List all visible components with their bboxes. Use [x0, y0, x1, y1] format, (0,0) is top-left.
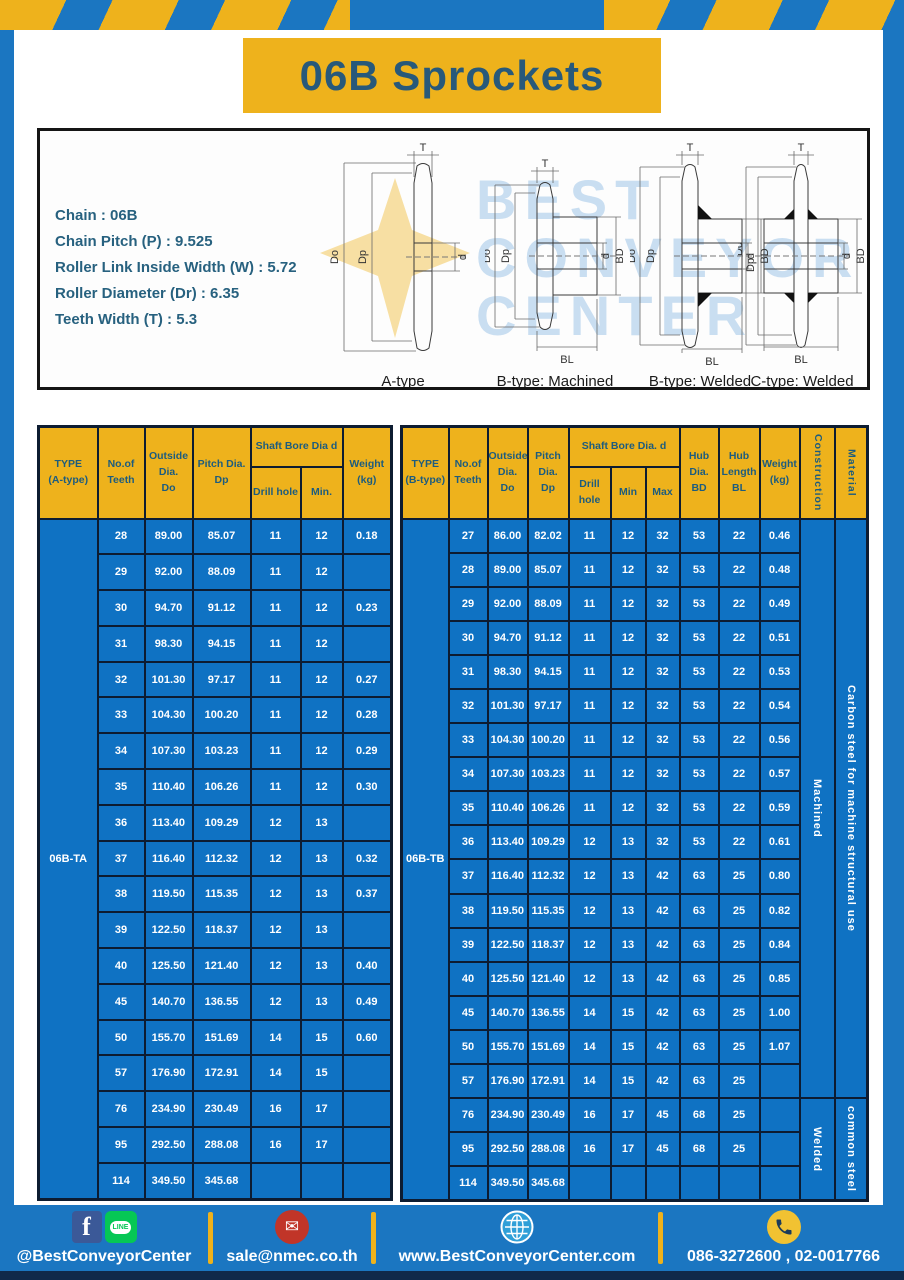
table-row: 34107.30103.2311123253220.57	[402, 757, 868, 791]
table-row: 3198.3094.1511123253220.53	[402, 655, 868, 689]
table-cell: 103.23	[193, 733, 251, 769]
table-cell: 112.32	[193, 841, 251, 877]
table-cell: 22	[719, 621, 760, 655]
table-cell: 114	[98, 1163, 145, 1199]
table-cell: 76	[98, 1091, 145, 1127]
table-cell: 13	[611, 962, 646, 996]
table-cell: 345.68	[193, 1163, 251, 1199]
table-cell: 95	[98, 1127, 145, 1163]
table-cell: 14	[251, 1055, 301, 1091]
table-cell	[343, 1091, 392, 1127]
table-cell: 25	[719, 1132, 760, 1166]
table-cell: 12	[301, 590, 343, 626]
svg-text:BD: BD	[855, 248, 866, 263]
table-cell	[760, 1064, 800, 1098]
footer-social-section: f LINE @BestConveyorCenter	[0, 1205, 208, 1271]
table-cell: 15	[301, 1055, 343, 1091]
table-cell: 13	[301, 876, 343, 912]
table-cell: 92.00	[488, 587, 528, 621]
table-cell: 109.29	[528, 825, 569, 859]
table-cell: 115.35	[193, 876, 251, 912]
table-cell: 98.30	[145, 626, 193, 662]
table-cell: 92.00	[145, 554, 193, 590]
svg-text:Do: Do	[485, 249, 493, 263]
table-cell: 101.30	[488, 689, 528, 723]
table-cell: 32	[646, 519, 680, 553]
caption-b-type-machined: B-type: Machined	[497, 373, 614, 390]
table-cell: 0.18	[343, 519, 392, 555]
table-row: 45140.70136.5514154263251.00	[402, 996, 868, 1030]
table-cell: 125.50	[145, 948, 193, 984]
table-cell: 57	[98, 1055, 145, 1091]
table-cell: 155.70	[145, 1020, 193, 1056]
table-cell: 13	[301, 984, 343, 1020]
table-cell: 12	[301, 519, 343, 555]
table-cell: 28	[98, 519, 145, 555]
table-cell: 101.30	[145, 662, 193, 698]
table-cell: 22	[719, 825, 760, 859]
table-cell: 0.23	[343, 590, 392, 626]
table-cell: 0.37	[343, 876, 392, 912]
col-header-construction: Construction	[800, 427, 835, 519]
table-cell: 97.17	[528, 689, 569, 723]
table-cell: 122.50	[145, 912, 193, 948]
phone-icon[interactable]	[767, 1210, 801, 1244]
table-cell: 40	[98, 948, 145, 984]
table-cell: 109.29	[193, 805, 251, 841]
table-cell: 1.07	[760, 1030, 800, 1064]
table-row: 33104.30100.2011123253220.56	[402, 723, 868, 757]
table-cell: 88.09	[528, 587, 569, 621]
table-row: 40125.50121.4012134263250.85	[402, 962, 868, 996]
table-cell: 63	[680, 928, 719, 962]
table-cell: 95	[449, 1132, 488, 1166]
table-row: 76234.90230.491617456825Weldedcommon ste…	[402, 1098, 868, 1132]
table-cell: 13	[611, 894, 646, 928]
table-cell: 16	[569, 1098, 611, 1132]
table-cell: 0.46	[760, 519, 800, 553]
svg-text:d: d	[841, 253, 853, 259]
caption-a-type: A-type	[381, 373, 424, 390]
table-cell: 0.49	[760, 587, 800, 621]
table-cell: 11	[569, 791, 611, 825]
table-cell: 25	[719, 996, 760, 1030]
table-cell: 11	[251, 697, 301, 733]
construction-cell: Machined	[800, 519, 835, 1099]
construction-cell: Welded	[800, 1098, 835, 1201]
diagram-a-type: T Do Dp d A-type	[328, 141, 478, 390]
table-cell: 91.12	[193, 590, 251, 626]
spec-chain: Chain : 06B	[55, 203, 297, 229]
globe-icon[interactable]	[500, 1210, 534, 1244]
table-cell: 12	[301, 554, 343, 590]
table-cell: 42	[646, 1030, 680, 1064]
footer-contact-bar: f LINE @BestConveyorCenter ✉ sale@nmec.c…	[0, 1205, 904, 1271]
col-header-max: Max	[646, 467, 680, 519]
table-cell: 31	[449, 655, 488, 689]
table-cell	[760, 1166, 800, 1201]
table-row: 114349.50345.68	[402, 1166, 868, 1201]
table-row: 38119.50115.3512134263250.82	[402, 894, 868, 928]
table-cell: 104.30	[145, 697, 193, 733]
svg-text:Dp: Dp	[357, 250, 369, 264]
table-cell: 12	[611, 655, 646, 689]
table-cell: 25	[719, 1030, 760, 1064]
table-cell: 155.70	[488, 1030, 528, 1064]
table-row: 2889.0085.0711123253220.48	[402, 553, 868, 587]
table-cell: 13	[301, 841, 343, 877]
table-cell: 42	[646, 962, 680, 996]
table-cell: 32	[646, 757, 680, 791]
table-cell: 25	[719, 1098, 760, 1132]
table-cell: 0.30	[343, 769, 392, 805]
mail-icon[interactable]: ✉	[275, 1210, 309, 1244]
table-row: 39122.50118.3712134263250.84	[402, 928, 868, 962]
table-cell: 50	[98, 1020, 145, 1056]
spec-pitch: Chain Pitch (P) : 9.525	[55, 229, 297, 255]
footer-website-section: www.BestConveyorCenter.com	[376, 1205, 658, 1271]
table-cell: 22	[719, 553, 760, 587]
table-cell: 16	[251, 1127, 301, 1163]
col-header-min: Min	[611, 467, 646, 519]
table-cell: 176.90	[488, 1064, 528, 1098]
table-cell: 32	[646, 791, 680, 825]
table-cell: 140.70	[145, 984, 193, 1020]
table-cell: 25	[719, 1064, 760, 1098]
a-type-drawing-icon: T Do Dp d	[328, 141, 478, 371]
table-cell	[611, 1166, 646, 1201]
col-header-shaft-bore: Shaft Bore Dia. d	[569, 427, 680, 467]
table-cell: 230.49	[528, 1098, 569, 1132]
col-header-pitch-dia: Pitch Dia. Dp	[528, 427, 569, 519]
table-cell: 15	[611, 1030, 646, 1064]
svg-text:BL: BL	[705, 356, 718, 368]
table-cell: 0.60	[343, 1020, 392, 1056]
table-cell: 17	[301, 1091, 343, 1127]
table-cell: 32	[646, 825, 680, 859]
table-cell	[343, 554, 392, 590]
table-cell: 22	[719, 723, 760, 757]
svg-text:T: T	[687, 142, 694, 154]
facebook-icon[interactable]: f	[72, 1211, 102, 1243]
table-cell: 345.68	[528, 1166, 569, 1201]
table-cell: 104.30	[488, 723, 528, 757]
table-cell: 119.50	[145, 876, 193, 912]
svg-text:d: d	[600, 253, 612, 259]
table-cell: 100.20	[193, 697, 251, 733]
col-header-pitch-dia: Pitch Dia. Dp	[193, 427, 251, 519]
table-cell: 34	[98, 733, 145, 769]
table-cell: 94.70	[488, 621, 528, 655]
line-app-icon[interactable]: LINE	[105, 1211, 137, 1243]
spec-roller-width: Roller Link Inside Width (W) : 5.72	[55, 255, 297, 281]
table-cell: 45	[646, 1132, 680, 1166]
table-cell: 0.28	[343, 697, 392, 733]
table-cell: 119.50	[488, 894, 528, 928]
diagram-b-type-machined: T Do Dp d BD BL	[485, 141, 625, 390]
table-cell: 16	[569, 1132, 611, 1166]
table-cell: 17	[611, 1098, 646, 1132]
table-cell: 32	[98, 662, 145, 698]
table-cell: 0.56	[760, 723, 800, 757]
col-header-teeth: No.of Teeth	[449, 427, 488, 519]
table-cell: 113.40	[488, 825, 528, 859]
table-cell: 27	[449, 519, 488, 553]
table-cell: 86.00	[488, 519, 528, 553]
table-cell: 112.32	[528, 859, 569, 893]
table-cell: 292.50	[145, 1127, 193, 1163]
table-cell: 12	[611, 723, 646, 757]
table-cell: 85.07	[528, 553, 569, 587]
table-cell: 12	[611, 553, 646, 587]
table-cell: 29	[449, 587, 488, 621]
table-cell: 13	[301, 948, 343, 984]
table-cell: 14	[569, 996, 611, 1030]
page-title: 06B Sprockets	[300, 52, 605, 100]
table-cell: 118.37	[528, 928, 569, 962]
table-cell: 0.59	[760, 791, 800, 825]
svg-text:Do: Do	[329, 250, 341, 264]
table-cell: 88.09	[193, 554, 251, 590]
table-cell: 176.90	[145, 1055, 193, 1091]
table-cell: 12	[301, 697, 343, 733]
table-cell: 12	[251, 805, 301, 841]
table-cell: 94.15	[528, 655, 569, 689]
table-cell: 12	[611, 519, 646, 553]
table-cell: 0.48	[760, 553, 800, 587]
svg-text:d: d	[457, 254, 469, 260]
table-a-header: TYPE (A-type) No.of Teeth Outside Dia. D…	[39, 427, 392, 519]
table-cell: 0.40	[343, 948, 392, 984]
table-cell: 11	[251, 769, 301, 805]
type-cell: 06B-TA	[39, 519, 98, 1200]
table-cell: 1.00	[760, 996, 800, 1030]
table-cell: 292.50	[488, 1132, 528, 1166]
page-title-banner: 06B Sprockets	[243, 38, 661, 113]
table-row: 32101.3097.1711123253220.54	[402, 689, 868, 723]
table-cell: 349.50	[488, 1166, 528, 1201]
table-cell: 53	[680, 655, 719, 689]
table-cell: 53	[680, 553, 719, 587]
table-cell: 12	[569, 859, 611, 893]
table-cell: 11	[569, 757, 611, 791]
table-cell: 115.35	[528, 894, 569, 928]
table-cell: 172.91	[193, 1055, 251, 1091]
table-cell: 53	[680, 689, 719, 723]
table-cell: 85.07	[193, 519, 251, 555]
table-cell: 118.37	[193, 912, 251, 948]
table-cell: 42	[646, 996, 680, 1030]
b-type-machined-drawing-icon: T Do Dp d BD BL	[485, 141, 625, 371]
table-row: 57176.90172.911415426325	[402, 1064, 868, 1098]
table-cell: 110.40	[145, 769, 193, 805]
table-cell: 53	[680, 791, 719, 825]
table-cell: 230.49	[193, 1091, 251, 1127]
table-cell: 12	[569, 894, 611, 928]
table-cell: 42	[646, 1064, 680, 1098]
table-cell: 121.40	[193, 948, 251, 984]
table-cell: 0.84	[760, 928, 800, 962]
table-cell: 53	[680, 519, 719, 553]
table-cell: 38	[449, 894, 488, 928]
table-cell: 106.26	[528, 791, 569, 825]
table-cell: 107.30	[145, 733, 193, 769]
table-cell: 53	[680, 621, 719, 655]
table-cell: 53	[680, 723, 719, 757]
line-label: LINE	[110, 1221, 132, 1234]
table-row: 36113.40109.2912133253220.61	[402, 825, 868, 859]
svg-text:Dp: Dp	[745, 258, 757, 272]
table-cell: 103.23	[528, 757, 569, 791]
table-cell: 12	[611, 587, 646, 621]
table-cell: 0.53	[760, 655, 800, 689]
table-cell: 116.40	[488, 859, 528, 893]
table-cell: 89.00	[145, 519, 193, 555]
col-header-type: TYPE (B-type)	[402, 427, 449, 519]
table-cell: 151.69	[193, 1020, 251, 1056]
table-cell: 22	[719, 655, 760, 689]
footer-phone-section: 086-3272600 , 02-0017766	[663, 1205, 904, 1271]
table-cell: 11	[251, 519, 301, 555]
svg-text:T: T	[798, 142, 805, 154]
table-cell: 151.69	[528, 1030, 569, 1064]
table-cell: 32	[646, 655, 680, 689]
table-cell: 11	[251, 733, 301, 769]
table-cell: 12	[301, 662, 343, 698]
table-cell: 0.29	[343, 733, 392, 769]
table-cell: 30	[449, 621, 488, 655]
table-cell	[343, 805, 392, 841]
table-b-header: TYPE (B-type) No.of Teeth Outside Dia. D…	[402, 427, 868, 519]
svg-text:Do: Do	[630, 249, 638, 263]
svg-text:Dp: Dp	[500, 249, 512, 263]
table-cell: 22	[719, 587, 760, 621]
table-cell: 42	[646, 859, 680, 893]
table-cell	[646, 1166, 680, 1201]
table-cell: 68	[680, 1098, 719, 1132]
table-cell: 94.15	[193, 626, 251, 662]
table-cell: 12	[251, 948, 301, 984]
table-cell: 12	[569, 928, 611, 962]
table-row: 3094.7091.1211123253220.51	[402, 621, 868, 655]
table-cell: 25	[719, 894, 760, 928]
table-cell	[760, 1132, 800, 1166]
table-cell: 25	[719, 928, 760, 962]
table-cell: 29	[98, 554, 145, 590]
table-cell: 11	[251, 590, 301, 626]
table-cell: 22	[719, 757, 760, 791]
table-cell: 0.54	[760, 689, 800, 723]
caption-c-type-welded: C-type: Welded	[750, 373, 853, 390]
table-cell: 11	[569, 587, 611, 621]
table-cell	[251, 1163, 301, 1199]
table-cell: 113.40	[145, 805, 193, 841]
table-cell: 91.12	[528, 621, 569, 655]
table-cell: 32	[646, 553, 680, 587]
table-b-type: TYPE (B-type) No.of Teeth Outside Dia. D…	[400, 425, 869, 1202]
table-cell: 28	[449, 553, 488, 587]
svg-text:T: T	[542, 158, 549, 170]
table-cell: 12	[569, 825, 611, 859]
table-cell: 172.91	[528, 1064, 569, 1098]
table-cell: 107.30	[488, 757, 528, 791]
caption-b-type-welded: B-type: Welded	[649, 373, 751, 390]
table-cell: 53	[680, 757, 719, 791]
table-cell: 76	[449, 1098, 488, 1132]
table-cell: 116.40	[145, 841, 193, 877]
table-cell: 349.50	[145, 1163, 193, 1199]
table-cell: 11	[569, 655, 611, 689]
table-cell: 63	[680, 1064, 719, 1098]
spec-roller-dia: Roller Diameter (Dr) : 6.35	[55, 281, 297, 307]
svg-text:Do: Do	[738, 242, 745, 256]
table-cell: 15	[301, 1020, 343, 1056]
table-cell: 15	[611, 1064, 646, 1098]
table-cell: 121.40	[528, 962, 569, 996]
col-header-outside-dia: Outside Dia. Do	[145, 427, 193, 519]
svg-text:BL: BL	[794, 354, 807, 366]
table-cell	[719, 1166, 760, 1201]
table-cell: 39	[449, 928, 488, 962]
table-cell	[301, 1163, 343, 1199]
table-cell: 25	[719, 859, 760, 893]
table-cell: 0.85	[760, 962, 800, 996]
hazard-stripes-right	[604, 0, 904, 30]
spec-teeth-width: Teeth Width (T) : 5.3	[55, 307, 297, 333]
table-cell: 15	[611, 996, 646, 1030]
table-b-body: 06B-TB2786.0082.0211123253220.46Machined…	[402, 519, 868, 1201]
table-cell: 234.90	[145, 1091, 193, 1127]
table-cell: 11	[569, 621, 611, 655]
table-cell: 140.70	[488, 996, 528, 1030]
table-cell: 42	[646, 928, 680, 962]
diagram-panel: BEST CONVEYOR CENTER Chain : 06B Chain P…	[37, 128, 870, 390]
table-row: 2992.0088.0911123253220.49	[402, 587, 868, 621]
table-cell: 234.90	[488, 1098, 528, 1132]
table-cell: 110.40	[488, 791, 528, 825]
table-cell: 45	[449, 996, 488, 1030]
table-row: 95292.50288.081617456825	[402, 1132, 868, 1166]
table-cell: 11	[251, 662, 301, 698]
email-address: sale@nmec.co.th	[226, 1248, 357, 1266]
material-cell: Carbon steel for machine structural use	[835, 519, 868, 1099]
table-cell: 12	[251, 912, 301, 948]
table-cell: 17	[301, 1127, 343, 1163]
table-cell: 11	[251, 626, 301, 662]
table-row: 06B-TA2889.0085.0711120.18	[39, 519, 392, 555]
table-cell: 63	[680, 894, 719, 928]
table-cell: 288.08	[193, 1127, 251, 1163]
table-cell: 82.02	[528, 519, 569, 553]
table-cell: 37	[98, 841, 145, 877]
table-cell: 32	[646, 723, 680, 757]
table-cell: 0.80	[760, 859, 800, 893]
table-cell: 63	[680, 859, 719, 893]
table-cell: 106.26	[193, 769, 251, 805]
website-url: www.BestConveyorCenter.com	[399, 1248, 636, 1266]
table-cell: 63	[680, 962, 719, 996]
table-cell: 0.27	[343, 662, 392, 698]
table-cell: 17	[611, 1132, 646, 1166]
table-cell: 33	[449, 723, 488, 757]
table-cell: 45	[646, 1098, 680, 1132]
phone-numbers: 086-3272600 , 02-0017766	[687, 1248, 880, 1266]
material-cell: common steel	[835, 1098, 868, 1201]
table-cell: 22	[719, 791, 760, 825]
table-cell: 12	[251, 876, 301, 912]
col-header-type: TYPE (A-type)	[39, 427, 98, 519]
table-cell: 12	[301, 769, 343, 805]
